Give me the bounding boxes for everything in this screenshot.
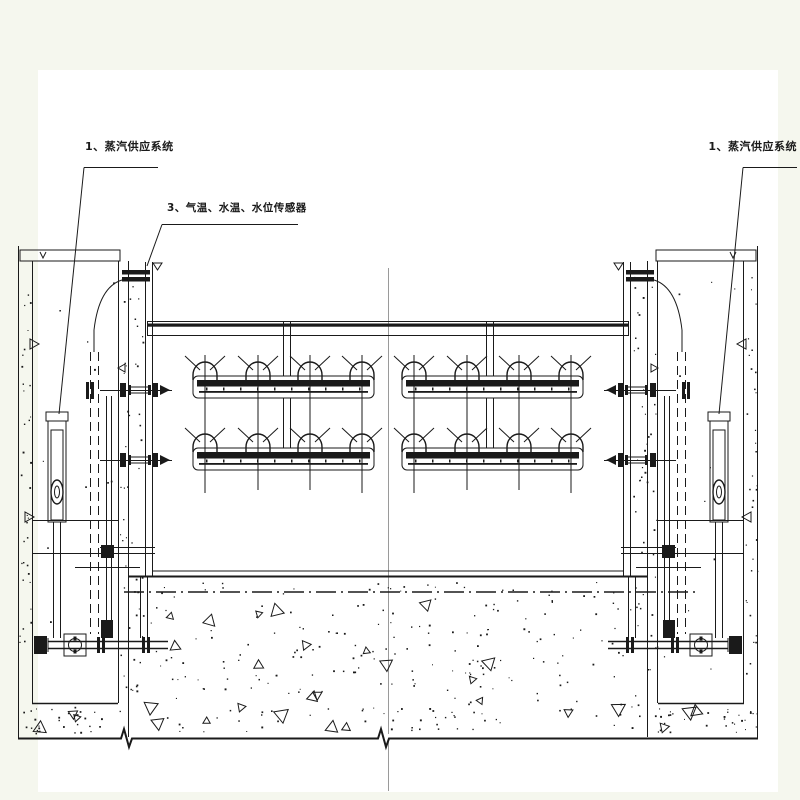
label-text: 1、蒸汽供应系统 <box>708 139 797 153</box>
engineering-drawing: 1、蒸汽供应系统 3、气温、水温、水位传感器 1、蒸汽供应系统 <box>0 0 800 800</box>
label-text: 1、蒸汽供应系统 <box>85 139 174 153</box>
label-text: 3、气温、水温、水位传感器 <box>167 201 307 214</box>
drawing-sheet <box>38 70 778 792</box>
